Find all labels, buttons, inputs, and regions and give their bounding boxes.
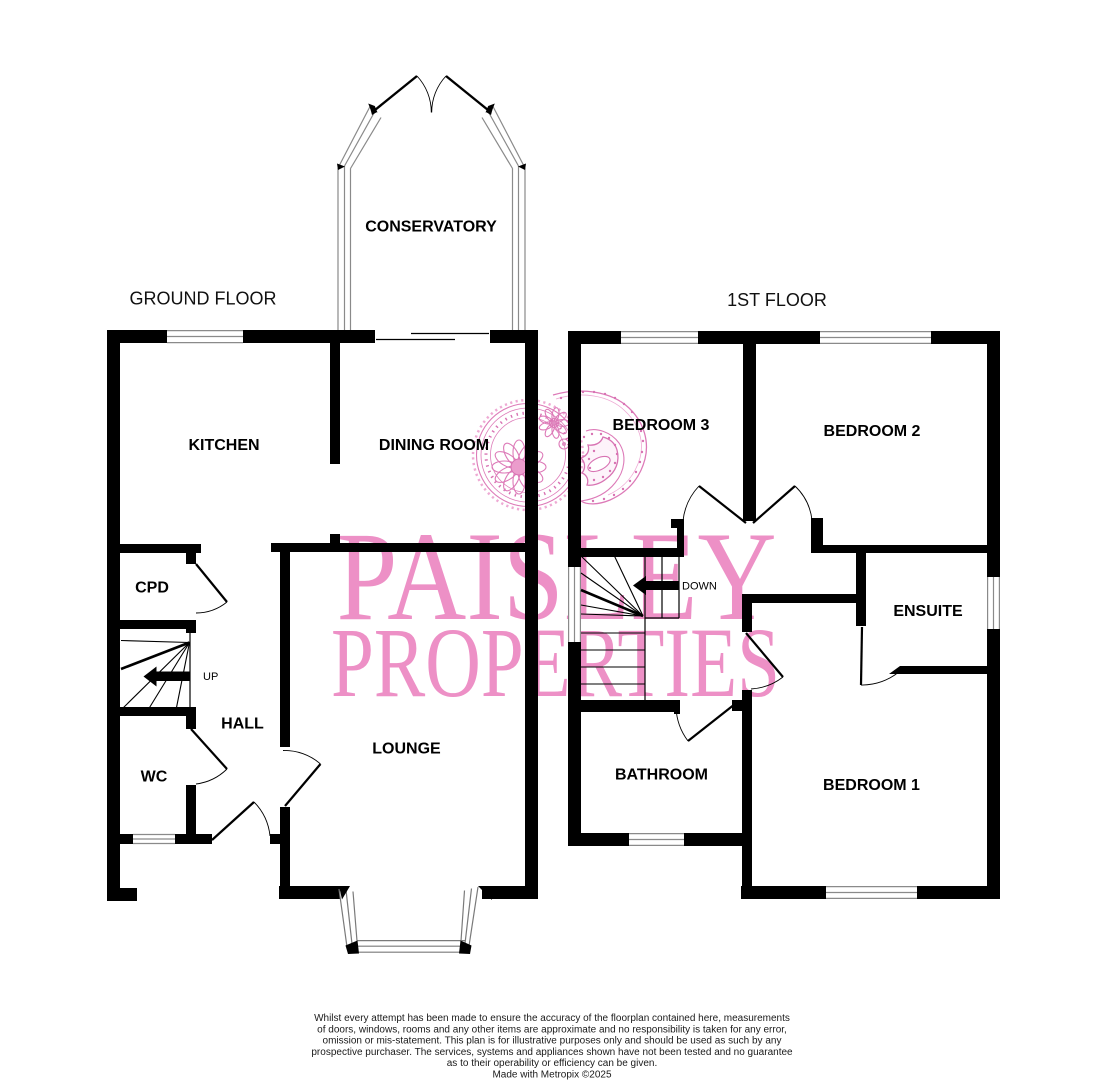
svg-text:UP: UP <box>203 671 218 683</box>
svg-text:Whilst every attempt has been: Whilst every attempt has been made to en… <box>314 1013 790 1024</box>
svg-text:KITCHEN: KITCHEN <box>188 437 259 454</box>
svg-text:BATHROOM: BATHROOM <box>615 767 708 784</box>
svg-text:Made with Metropix ©2025: Made with Metropix ©2025 <box>492 1069 612 1080</box>
svg-text:CPD: CPD <box>135 580 169 597</box>
svg-text:DOWN: DOWN <box>682 581 717 593</box>
svg-text:WC: WC <box>141 769 168 786</box>
svg-text:BEDROOM 2: BEDROOM 2 <box>824 423 921 440</box>
svg-text:LOUNGE: LOUNGE <box>372 741 441 758</box>
svg-text:ENSUITE: ENSUITE <box>893 603 963 620</box>
svg-text:HALL: HALL <box>221 716 264 733</box>
svg-text:BEDROOM 1: BEDROOM 1 <box>823 777 920 794</box>
svg-text:of doors, windows, rooms and a: of doors, windows, rooms and any other i… <box>317 1024 787 1035</box>
svg-text:omission or mis-statement. Thi: omission or mis-statement. This plan is … <box>323 1036 782 1047</box>
svg-text:CONSERVATORY: CONSERVATORY <box>365 219 497 236</box>
svg-text:GROUND FLOOR: GROUND FLOOR <box>129 289 276 309</box>
svg-text:PROPERTIES: PROPERTIES <box>331 609 780 719</box>
svg-text:DINING ROOM: DINING ROOM <box>379 437 489 454</box>
svg-text:1ST FLOOR: 1ST FLOOR <box>727 290 827 310</box>
svg-text:BEDROOM 3: BEDROOM 3 <box>613 417 710 434</box>
svg-text:as to their operability or eff: as to their operability or efficiency ca… <box>447 1058 658 1069</box>
svg-text:prospective purchaser. The ser: prospective purchaser. The services, sys… <box>311 1047 793 1058</box>
